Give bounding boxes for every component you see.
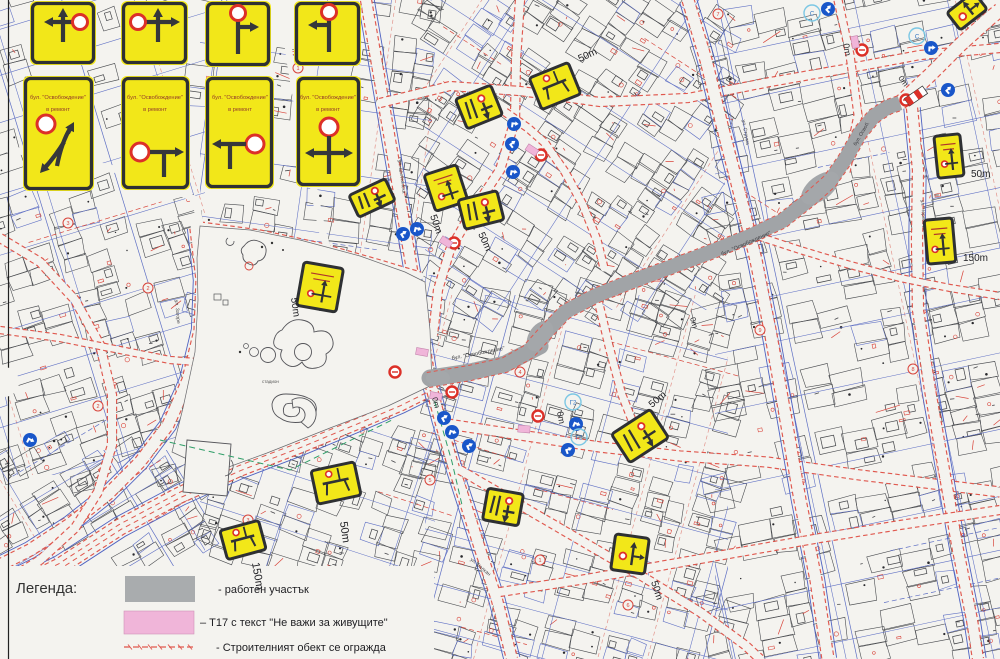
svg-text:2: 2 xyxy=(96,404,99,410)
svg-text:1: 1 xyxy=(296,66,299,72)
svg-text:Легенда:: Легенда: xyxy=(16,580,77,597)
svg-text:6: 6 xyxy=(626,603,629,609)
svg-text:в ремонт: в ремонт xyxy=(143,107,167,113)
svg-text:Г2: Г2 xyxy=(570,401,577,407)
svg-text:5: 5 xyxy=(428,478,431,484)
svg-text:2: 2 xyxy=(146,286,149,292)
svg-text:3: 3 xyxy=(66,221,69,227)
svg-text:- Строителният обект се огражд: - Строителният обект се огражда xyxy=(216,642,387,654)
svg-text:стадион: стадион xyxy=(262,379,279,384)
svg-text:50m: 50m xyxy=(971,169,990,180)
svg-text:9: 9 xyxy=(758,328,761,334)
svg-text:150m: 150m xyxy=(963,253,988,264)
svg-text:бул. "Освобождение": бул. "Освобождение" xyxy=(212,95,268,101)
svg-text:– Т17 с текст "Не важи за: – Т17 с текст "Не важи за живущите" xyxy=(200,617,388,629)
svg-text:С: С xyxy=(915,35,920,41)
svg-text:4: 4 xyxy=(518,370,521,376)
svg-text:в ремонт: в ремонт xyxy=(316,107,340,113)
svg-text:Г2: Г2 xyxy=(576,436,583,442)
svg-text:0m: 0m xyxy=(555,411,567,425)
svg-text:в ремонт: в ремонт xyxy=(228,107,252,113)
svg-text:7: 7 xyxy=(716,12,719,18)
svg-text:0m: 0m xyxy=(841,43,853,57)
svg-text:1: 1 xyxy=(538,558,541,564)
svg-text:в ремонт: в ремонт xyxy=(46,107,70,113)
svg-text:бул. "Освобождение": бул. "Освобождение" xyxy=(127,95,183,101)
svg-text:бул. "Освобождение": бул. "Освобождение" xyxy=(30,95,86,101)
svg-text:С: С xyxy=(810,12,815,18)
svg-text:бул. "Освобождение": бул. "Освобождение" xyxy=(300,95,356,101)
svg-text:8: 8 xyxy=(911,367,914,373)
